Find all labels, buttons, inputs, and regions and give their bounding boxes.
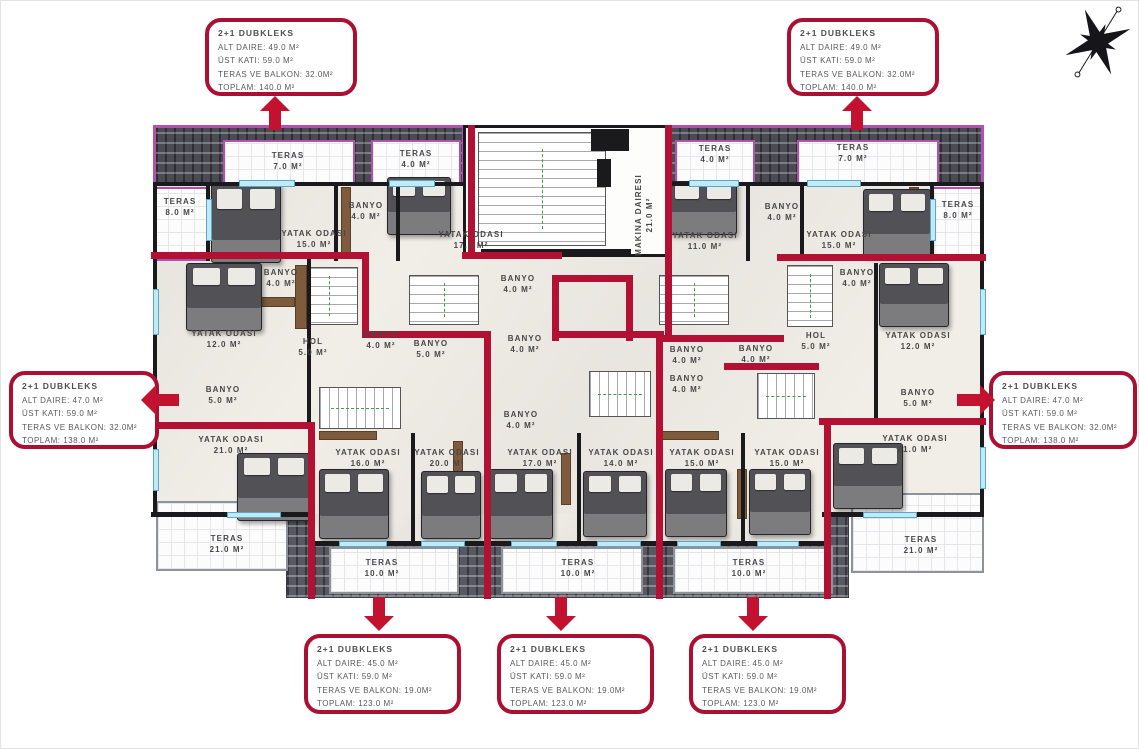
room-label: BANYO4.0 M² — [264, 267, 298, 289]
wall — [396, 185, 400, 261]
unit-divider-wall — [777, 254, 986, 261]
info-callout-bottom-center: 2+1 DUBKLEKSALT DAIRE: 45.0 M²ÜST KATI: … — [497, 634, 654, 714]
room-label: BANYO4.0 M² — [840, 267, 874, 289]
room-name: BANYO — [765, 201, 799, 212]
wall — [591, 129, 629, 151]
callout-line: TOPLAM: 123.0 M² — [702, 697, 833, 711]
unit-divider-wall — [151, 252, 369, 259]
room-name: YATAK ODASI — [335, 447, 400, 458]
room-label: YATAK ODASI14.0 M² — [588, 447, 653, 469]
room-label: BANYO5.0 M² — [414, 338, 448, 360]
room-label: YATAK ODASI17.0 M² — [507, 447, 572, 469]
room-name: BANYO — [739, 343, 773, 354]
callout-line: ALT DAIRE: 45.0 M² — [702, 657, 833, 671]
room-area: 10.0 M² — [561, 568, 596, 579]
compass-icon — [1059, 3, 1137, 81]
bed-icon — [669, 181, 737, 235]
callout-title: 2+1 DUBKLEKS — [702, 643, 833, 657]
room-name: TERAS — [365, 557, 400, 568]
window — [153, 449, 159, 491]
callout-line: ÜST KATI: 59.0 M² — [510, 670, 641, 684]
room-label: TERAS21.0 M² — [904, 534, 939, 556]
room-name: TERAS — [400, 148, 433, 159]
callout-line: TOPLAM: 138.0 M² — [22, 434, 146, 448]
room-name: YATAK ODASI — [414, 447, 479, 458]
room-name: YATAK ODASI — [507, 447, 572, 458]
wall — [800, 185, 804, 261]
callout-title: 2+1 DUBKLEKS — [800, 27, 926, 41]
room-name: TERAS — [904, 534, 939, 545]
room-area: 4.0 M² — [670, 355, 704, 366]
unit-divider-wall — [462, 252, 562, 259]
room-area: 5.0 M² — [801, 341, 830, 352]
arrow-left-icon — [141, 385, 179, 420]
room-area: 4.0 M² — [508, 344, 542, 355]
room-area: 20.0 M² — [414, 458, 479, 469]
room-area: 10.0 M² — [732, 568, 767, 579]
unit-divider-wall — [824, 420, 831, 599]
wall — [874, 263, 878, 425]
room-name: BANYO — [414, 338, 448, 349]
callout-line: TERAS VE BALKON: 19.0M² — [510, 684, 641, 698]
room-area: 5.0 M² — [206, 395, 240, 406]
room-area: 11.0 M² — [672, 241, 737, 252]
room-name: TERAS — [942, 199, 975, 210]
room-label: BANYO4.0 M² — [739, 343, 773, 365]
room-label: HOL5.0 M² — [298, 336, 327, 358]
room-area: 4.0 M² — [840, 278, 874, 289]
room-area: 5.0 M² — [901, 398, 935, 409]
window — [206, 199, 212, 241]
info-callout-top-left: 2+1 DUBKLEKSALT DAIRE: 49.0 M²ÜST KATI: … — [205, 18, 357, 96]
room-label: YATAK ODASI15.0 M² — [669, 447, 734, 469]
room-label: BANYO4.0 M² — [765, 201, 799, 223]
unit-divider-wall — [663, 335, 784, 342]
callout-title: 2+1 DUBKLEKS — [510, 643, 641, 657]
window — [239, 180, 295, 187]
callout-line: ÜST KATI: 59.0 M² — [218, 54, 344, 68]
room-label: TERAS8.0 M² — [942, 199, 975, 221]
room-name: BANYO — [670, 344, 704, 355]
room-label: TERAS10.0 M² — [732, 557, 767, 579]
room-label: YATAK ODASI11.0 M² — [672, 230, 737, 252]
callout-line: ÜST KATI: 59.0 M² — [800, 54, 926, 68]
room-area: 4.0 M² — [364, 340, 398, 351]
room-name: YATAK ODASI — [885, 330, 950, 341]
info-callout-bottom-left: 2+1 DUBKLEKSALT DAIRE: 45.0 M²ÜST KATI: … — [304, 634, 461, 714]
arrow-up-icon — [260, 96, 290, 135]
room-name: YATAK ODASI — [754, 447, 819, 458]
wardrobe-icon — [319, 431, 377, 440]
room-label: YATAK ODASI15.0 M² — [281, 228, 346, 250]
callout-line: ÜST KATI: 59.0 M² — [22, 407, 146, 421]
room-label: TERAS21.0 M² — [210, 533, 245, 555]
room-label: TERAS7.0 M² — [837, 142, 870, 164]
callout-line: ÜST KATI: 59.0 M² — [1002, 407, 1124, 421]
room-name: BANYO — [349, 200, 383, 211]
room-area: 21.0 M² — [198, 445, 263, 456]
callout-line: TOPLAM: 123.0 M² — [510, 697, 641, 711]
callout-line: ALT DAIRE: 49.0 M² — [800, 41, 926, 55]
room-area: 10.0 M² — [365, 568, 400, 579]
callout-title: 2+1 DUBKLEKS — [1002, 380, 1124, 394]
room-name: BANYO — [508, 333, 542, 344]
room-label: YATAK ODASI12.0 M² — [191, 328, 256, 350]
room-label: TERAS4.0 M² — [699, 143, 732, 165]
info-callout-left: 2+1 DUBKLEKSALT DAIRE: 47.0 M²ÜST KATI: … — [9, 371, 159, 449]
room-label: BANYO4.0 M² — [349, 200, 383, 222]
room-area: 17.0 M² — [438, 240, 503, 251]
callout-title: 2+1 DUBKLEKS — [22, 380, 146, 394]
window — [980, 447, 986, 489]
room-area: 4.0 M² — [400, 159, 433, 170]
callout-title: 2+1 DUBKLEKS — [317, 643, 448, 657]
room-name: TERAS — [732, 557, 767, 568]
room-label: TERAS4.0 M² — [400, 148, 433, 170]
room-area: 14.0 M² — [588, 458, 653, 469]
room-area: 21.0 M² — [882, 444, 947, 455]
room-label: TERAS8.0 M² — [164, 196, 197, 218]
room-label: YATAK ODASI17.0 M² — [438, 229, 503, 251]
room-area: 4.0 M² — [264, 278, 298, 289]
window — [757, 541, 799, 547]
arrow-down-icon — [738, 597, 768, 636]
room-area: 15.0 M² — [281, 239, 346, 250]
unit-divider-wall — [552, 331, 664, 338]
stairs-icon — [787, 265, 833, 327]
room-label: YATAK ODASI12.0 M² — [885, 330, 950, 352]
room-name: HOL — [801, 330, 830, 341]
wall — [597, 159, 611, 187]
room-name: YATAK ODASI — [198, 434, 263, 445]
room-area: 4.0 M² — [765, 212, 799, 223]
callout-line: ÜST KATI: 59.0 M² — [702, 670, 833, 684]
unit-divider-wall — [484, 331, 491, 599]
room-area: 5.0 M² — [414, 349, 448, 360]
room-area: 21.0 M² — [644, 174, 655, 256]
floor-plan-page: TERAS7.0 M²TERAS4.0 M²TERAS8.0 M²YATAK O… — [0, 0, 1139, 749]
room-area: 4.0 M² — [501, 284, 535, 295]
room-name: BANYO — [840, 267, 874, 278]
unit-divider-wall — [151, 422, 315, 429]
room-area: 21.0 M² — [210, 544, 245, 555]
room-area: 15.0 M² — [806, 240, 871, 251]
room-label: BANYO5.0 M² — [206, 384, 240, 406]
room-label: YATAK ODASI21.0 M² — [882, 433, 947, 455]
stairs-icon — [409, 275, 479, 325]
callout-line: TOPLAM: 140.0 M² — [218, 81, 344, 95]
room-area: 21.0 M² — [904, 545, 939, 556]
window — [421, 541, 465, 547]
room-name: YATAK ODASI — [191, 328, 256, 339]
room-name: BANYO — [504, 409, 538, 420]
callout-line: TERAS VE BALKON: 19.0M² — [702, 684, 833, 698]
room-name: TERAS — [272, 150, 305, 161]
bed-icon — [863, 189, 931, 257]
room-name: TERAS — [561, 557, 596, 568]
unit-divider-wall — [665, 125, 672, 339]
window — [807, 180, 861, 187]
window — [677, 541, 721, 547]
room-label: YATAK ODASI15.0 M² — [754, 447, 819, 469]
callout-line: TERAS VE BALKON: 32.0M² — [800, 68, 926, 82]
stairs-icon — [757, 373, 815, 419]
callout-line: ALT DAIRE: 47.0 M² — [1002, 394, 1124, 408]
unit-divider-wall — [552, 275, 633, 282]
room-name: YATAK ODASI — [281, 228, 346, 239]
bed-icon — [186, 263, 262, 331]
bed-icon — [749, 469, 811, 535]
room-name: YATAK ODASI — [806, 229, 871, 240]
room-name: BANYO — [501, 273, 535, 284]
callout-line: ÜST KATI: 59.0 M² — [317, 670, 448, 684]
callout-line: ALT DAIRE: 47.0 M² — [22, 394, 146, 408]
bed-icon — [319, 469, 389, 539]
room-name: YATAK ODASI — [669, 447, 734, 458]
room-label: YATAK ODASI16.0 M² — [335, 447, 400, 469]
info-callout-right: 2+1 DUBKLEKSALT DAIRE: 47.0 M²ÜST KATI: … — [989, 371, 1137, 449]
callout-title: 2+1 DUBKLEKS — [218, 27, 344, 41]
room-area: 5.0 M² — [298, 347, 327, 358]
callout-line: TOPLAM: 123.0 M² — [317, 697, 448, 711]
stairs-icon — [589, 371, 651, 417]
room-name: BANYO — [206, 384, 240, 395]
room-label: BANYO4.0 M² — [670, 344, 704, 366]
room-label: YATAK ODASI15.0 M² — [806, 229, 871, 251]
bed-icon — [211, 183, 281, 263]
room-name: YATAK ODASI — [588, 447, 653, 458]
window — [689, 180, 739, 187]
callout-line: TOPLAM: 138.0 M² — [1002, 434, 1124, 448]
callout-line: TERAS VE BALKON: 32.0M² — [22, 421, 146, 435]
room-label: MAKINA DAIRESI21.0 M² — [633, 174, 655, 256]
room-label: BANYO4.0 M² — [670, 373, 704, 395]
window — [389, 180, 435, 187]
room-name: TERAS — [837, 142, 870, 153]
room-area: 4.0 M² — [349, 211, 383, 222]
callout-line: TERAS VE BALKON: 19.0M² — [317, 684, 448, 698]
callout-line: TERAS VE BALKON: 32.0M² — [218, 68, 344, 82]
room-name: BANYO — [901, 387, 935, 398]
room-area: 7.0 M² — [272, 161, 305, 172]
callout-line: ALT DAIRE: 45.0 M² — [510, 657, 641, 671]
room-label: HOL5.0 M² — [801, 330, 830, 352]
info-callout-top-right: 2+1 DUBKLEKSALT DAIRE: 49.0 M²ÜST KATI: … — [787, 18, 939, 96]
arrow-down-icon — [546, 597, 576, 636]
room-area: 17.0 M² — [507, 458, 572, 469]
room-name: YATAK ODASI — [438, 229, 503, 240]
bed-icon — [665, 469, 727, 537]
room-name: TERAS — [164, 196, 197, 207]
room-area: 4.0 M² — [739, 354, 773, 365]
window — [227, 512, 281, 518]
wall — [746, 185, 750, 261]
room-label: BANYO4.0 M² — [364, 329, 398, 351]
window — [980, 289, 986, 335]
callout-line: ALT DAIRE: 49.0 M² — [218, 41, 344, 55]
bed-icon — [237, 453, 311, 521]
room-area: 4.0 M² — [504, 420, 538, 431]
wall — [577, 433, 581, 543]
room-label: YATAK ODASI21.0 M² — [198, 434, 263, 456]
stairs-icon — [319, 387, 401, 429]
room-area: 7.0 M² — [837, 153, 870, 164]
room-label: BANYO5.0 M² — [901, 387, 935, 409]
room-label: TERAS7.0 M² — [272, 150, 305, 172]
room-name: MAKINA DAIRESI — [633, 174, 644, 256]
wardrobe-icon — [661, 431, 719, 440]
room-name: BANYO — [264, 267, 298, 278]
room-label: BANYO4.0 M² — [508, 333, 542, 355]
wall — [741, 433, 745, 543]
arrow-up-icon — [842, 96, 872, 135]
bed-icon — [489, 469, 553, 539]
room-area: 8.0 M² — [942, 210, 975, 221]
bed-icon — [583, 471, 647, 537]
room-name: TERAS — [699, 143, 732, 154]
room-name: HOL — [298, 336, 327, 347]
room-label: YATAK ODASI20.0 M² — [414, 447, 479, 469]
room-label: BANYO4.0 M² — [504, 409, 538, 431]
callout-line: TOPLAM: 140.0 M² — [800, 81, 926, 95]
room-area: 4.0 M² — [670, 384, 704, 395]
unit-divider-wall — [362, 254, 369, 338]
callout-line: ALT DAIRE: 45.0 M² — [317, 657, 448, 671]
window — [339, 541, 387, 547]
window — [863, 512, 917, 518]
room-label: BANYO4.0 M² — [501, 273, 535, 295]
room-area: 15.0 M² — [754, 458, 819, 469]
window — [597, 541, 641, 547]
room-area: 15.0 M² — [669, 458, 734, 469]
arrow-down-icon — [364, 597, 394, 636]
room-name: BANYO — [670, 373, 704, 384]
room-area: 4.0 M² — [699, 154, 732, 165]
unit-divider-wall — [656, 337, 663, 599]
unit-divider-wall — [308, 424, 315, 599]
room-name: YATAK ODASI — [672, 230, 737, 241]
room-label: TERAS10.0 M² — [561, 557, 596, 579]
room-area: 12.0 M² — [885, 341, 950, 352]
room-name: YATAK ODASI — [882, 433, 947, 444]
room-name: TERAS — [210, 533, 245, 544]
room-area: 8.0 M² — [164, 207, 197, 218]
window — [153, 289, 159, 335]
bed-icon — [879, 263, 949, 327]
window — [930, 199, 936, 241]
window — [511, 541, 557, 547]
room-label: TERAS10.0 M² — [365, 557, 400, 579]
callout-line: TERAS VE BALKON: 32.0M² — [1002, 421, 1124, 435]
info-callout-bottom-right: 2+1 DUBKLEKSALT DAIRE: 45.0 M²ÜST KATI: … — [689, 634, 846, 714]
bed-icon — [421, 471, 481, 539]
room-name: BANYO — [364, 329, 398, 340]
arrow-right-icon — [957, 385, 995, 420]
room-area: 12.0 M² — [191, 339, 256, 350]
room-area: 16.0 M² — [335, 458, 400, 469]
